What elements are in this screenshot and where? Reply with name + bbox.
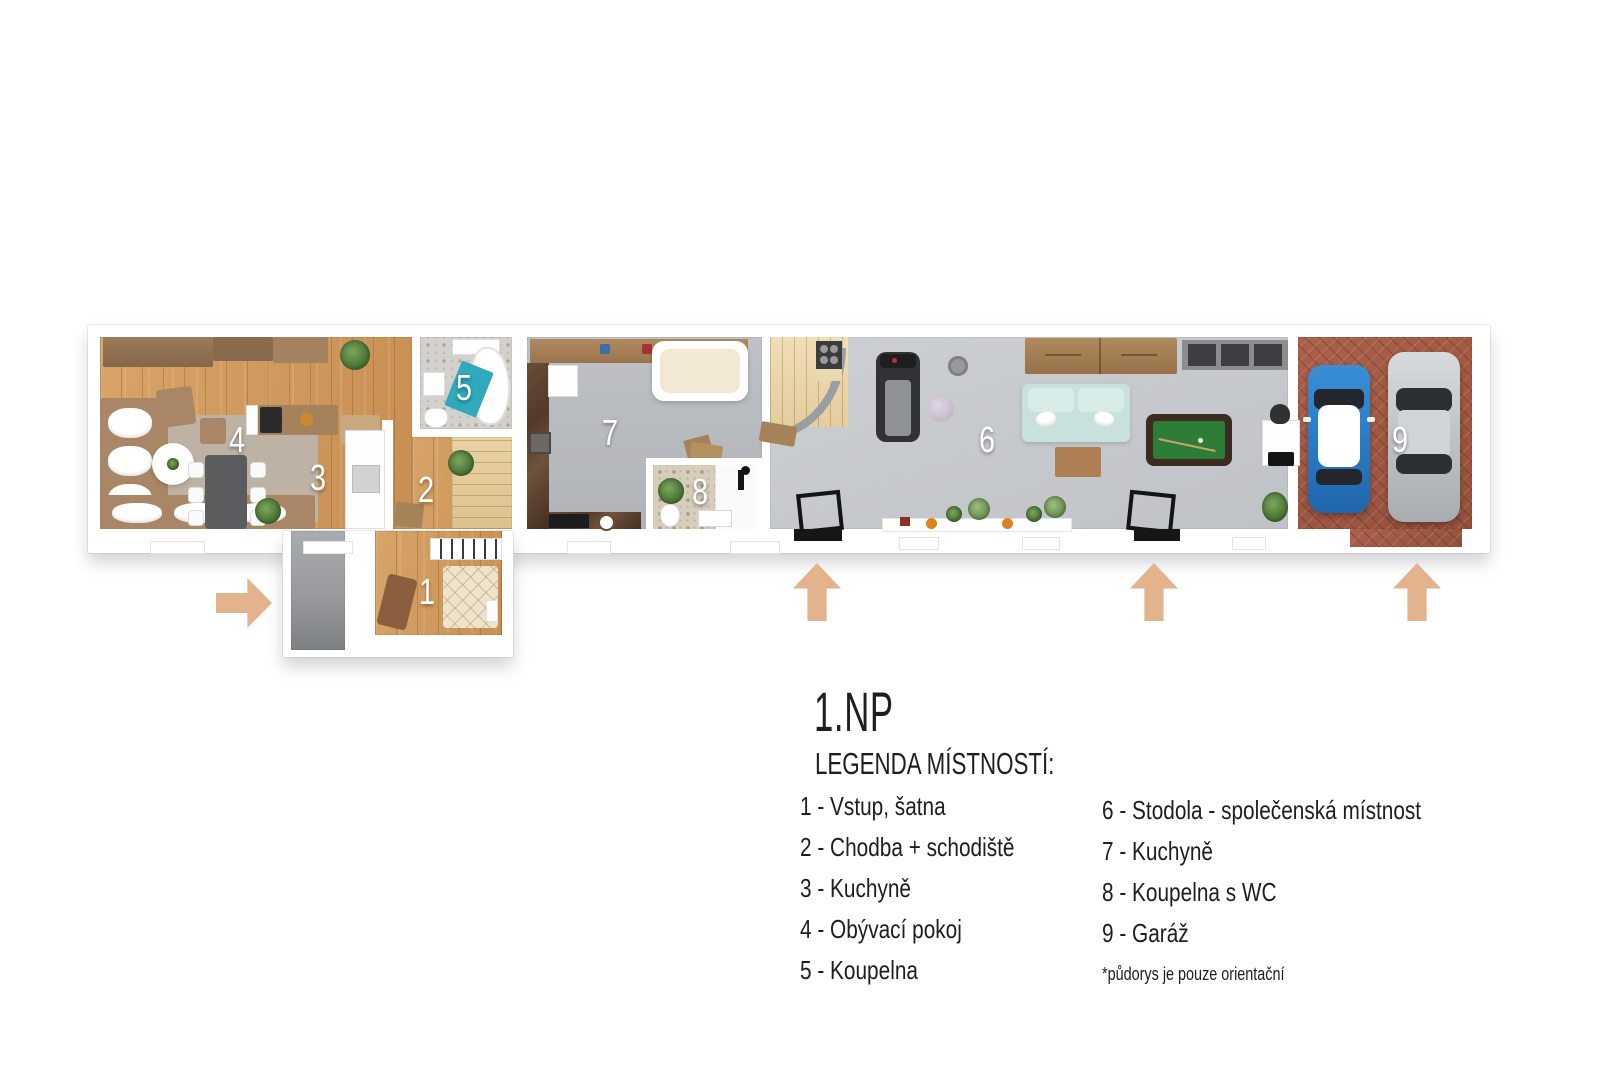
room-number-label: 6	[979, 419, 995, 461]
room-number-label: 4	[229, 419, 245, 461]
dining-chair	[188, 510, 204, 526]
glass-door-sill	[794, 529, 842, 541]
kitchen-counter	[345, 430, 385, 529]
open-door-frame	[796, 490, 844, 534]
stove-grate	[529, 432, 551, 454]
room-number-label: 9	[1392, 419, 1408, 461]
room-number-label: 3	[310, 457, 326, 499]
plant-icon	[448, 450, 474, 476]
vase-icon	[1270, 404, 1290, 424]
planter-box	[900, 517, 910, 526]
bathroom-cabinet	[423, 372, 445, 396]
floorplan-image: 1 2 3 4 5 6 7 8 9 1.NP LEGENDA MÍSTNOSTÍ…	[0, 0, 1600, 1066]
door-threshold	[303, 541, 353, 554]
armchair	[156, 386, 197, 429]
plant-icon	[1262, 492, 1288, 522]
daybed	[652, 341, 748, 401]
entrance-arrow-right-icon	[216, 578, 272, 628]
pool-table	[1146, 414, 1232, 466]
coffee-table	[1055, 447, 1101, 477]
room-number-label: 7	[602, 412, 618, 454]
pumpkin-icon	[1002, 518, 1013, 529]
plant-icon	[946, 506, 962, 522]
dining-chair	[188, 487, 204, 503]
room-number-label: 2	[418, 469, 434, 511]
legend-footnote: *půdorys je pouze orientační	[1102, 959, 1421, 989]
glass-door-sill	[1134, 529, 1180, 541]
black-chair	[1268, 452, 1294, 466]
entrance-arrow-up-icon	[793, 563, 841, 621]
dining-chair	[250, 462, 266, 478]
legend-item: 9 - Garáž	[1102, 913, 1421, 954]
island-end-panel	[246, 405, 258, 435]
fridge	[548, 365, 578, 397]
wardrobe-cabinet	[103, 337, 213, 367]
dining-table	[205, 455, 247, 529]
lounge-sofa	[1022, 384, 1130, 442]
plant-icon	[340, 340, 370, 370]
room-number-label: 5	[456, 367, 472, 409]
door-threshold	[899, 537, 939, 550]
window-sill-planter	[882, 518, 1072, 532]
door-threshold	[567, 541, 611, 554]
robot-vacuum-icon	[948, 356, 968, 376]
door-threshold	[1232, 537, 1266, 550]
door-mat	[549, 514, 589, 528]
garage-arrow-up-icon	[1393, 563, 1441, 621]
legend-item: 6 - Stodola - společenská místnost	[1102, 790, 1421, 831]
door-threshold	[730, 541, 780, 554]
stove-top	[816, 341, 842, 369]
garage-door-opening	[1350, 529, 1462, 547]
open-door-frame	[1126, 490, 1176, 535]
exercise-ball	[928, 396, 954, 422]
plant-icon	[1026, 506, 1042, 522]
legend-item: 1 - Vstup, šatna	[800, 786, 1015, 827]
legend-item: 2 - Chodba + schodiště	[800, 827, 1015, 868]
toilet	[424, 408, 448, 428]
legend-item: 4 - Obývací pokoj	[800, 909, 1015, 950]
ottoman	[200, 418, 226, 444]
legend-heading: LEGENDA MÍSTNOSTÍ:	[815, 748, 1054, 779]
legend-item: 3 - Kuchyně	[800, 868, 1015, 909]
shoe-cabinet	[486, 600, 498, 622]
kitchen-upper-cabinet	[273, 337, 328, 363]
legend-item: 5 - Koupelna	[800, 950, 1015, 991]
plant-icon	[255, 498, 281, 524]
pet-bowl-icon	[598, 514, 615, 531]
door-threshold	[150, 541, 205, 554]
car-blue	[1308, 365, 1370, 513]
room-number-label: 8	[692, 471, 708, 513]
stove-base	[818, 369, 842, 381]
room-number-label: 1	[419, 571, 435, 613]
plant-icon	[968, 498, 990, 520]
kitchen-island	[258, 405, 338, 435]
floor-title: 1.NP	[814, 684, 894, 740]
entrance-arrow-up-icon	[1130, 563, 1178, 621]
pumpkin-icon	[926, 518, 937, 529]
dining-chair	[188, 462, 204, 478]
legend-column-right: 6 - Stodola - společenská místnost 7 - K…	[1102, 790, 1421, 989]
sideboard-cabinet	[213, 337, 273, 361]
plant-icon	[1044, 496, 1066, 518]
sideboard	[1025, 338, 1177, 374]
legend-item: 8 - Koupelna s WC	[1102, 872, 1421, 913]
locker-cabinets	[1182, 340, 1288, 370]
coat-rack	[430, 538, 502, 560]
treadmill	[876, 352, 920, 442]
door-threshold	[1022, 537, 1060, 550]
legend-column-left: 1 - Vstup, šatna 2 - Chodba + schodiště …	[800, 786, 1015, 991]
legend-item: 7 - Kuchyně	[1102, 831, 1421, 872]
